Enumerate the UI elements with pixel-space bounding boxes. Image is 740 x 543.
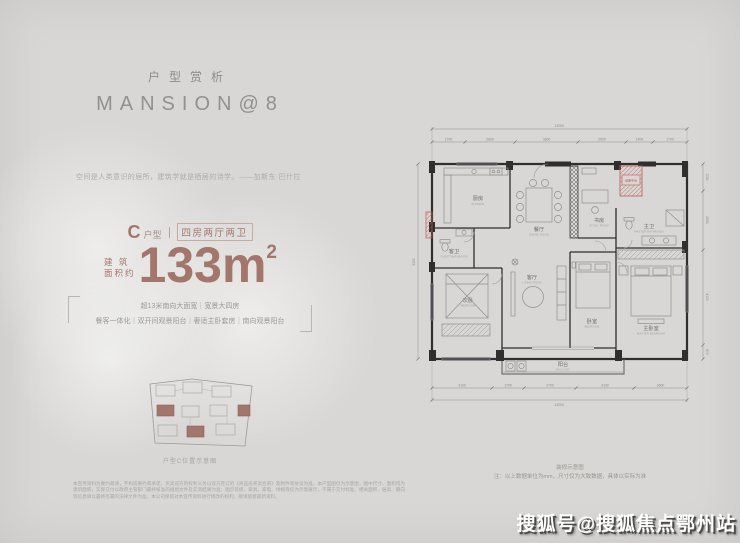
equipment-platform-label: 设备平台 bbox=[625, 178, 637, 183]
room-label: 主卫 bbox=[644, 222, 654, 230]
room-study: 书房 STUDY ROOM bbox=[589, 216, 609, 228]
room-label: 厨房 bbox=[473, 194, 483, 202]
room-label: 客厅 bbox=[527, 273, 537, 281]
key-plan-highlighted-units bbox=[157, 405, 250, 437]
room-sublabel: BEDROOM bbox=[585, 325, 600, 329]
dim-label: 1700 bbox=[666, 138, 674, 142]
room-sublabel: STUDY ROOM bbox=[589, 224, 609, 228]
dim-label: 600 bbox=[705, 349, 709, 355]
dim-label: 1150 bbox=[705, 173, 709, 180]
floor-plan: 13200 1700 2600 3300 2500 1400 1700 3350… bbox=[402, 116, 724, 466]
walls bbox=[429, 161, 689, 374]
dim-label: 3300 bbox=[543, 138, 551, 142]
header: 户型赏析 MANSION@8 bbox=[58, 68, 322, 116]
area-prefix: 建 筑 面积约 bbox=[104, 257, 136, 279]
room-kitchen: 厨房 KITCHEN bbox=[472, 194, 485, 206]
dim-label: 1700 bbox=[445, 138, 453, 142]
room-label: 次卧 bbox=[463, 296, 473, 304]
area-prefix-line2: 面积约 bbox=[104, 268, 136, 279]
dim-label: 2600 bbox=[657, 384, 665, 388]
room-sublabel: BALCONY bbox=[556, 368, 570, 372]
dim-label: 1700 bbox=[504, 384, 512, 388]
divider bbox=[169, 227, 170, 238]
room-guest-bath: 客卫 GUEST BATHROOM bbox=[440, 247, 467, 259]
dim-label: 2500 bbox=[598, 138, 606, 142]
room-sublabel: MASTER BEDROOM bbox=[637, 332, 665, 336]
plan-notes: 装修示意图 注：以上数据单位为mm，尺寸仅为大致数据，具体以实际为准 bbox=[420, 464, 720, 482]
room-label: 餐厅 bbox=[534, 225, 544, 233]
watermark: 搜狐号@搜狐焦点鄂州站 bbox=[516, 509, 736, 536]
key-plan-caption: 户型C位置示意图 bbox=[58, 456, 322, 465]
room-bedroom: 卧室 BEDROOM bbox=[585, 317, 600, 329]
dim-label: 3100 bbox=[601, 384, 609, 388]
room-balcony: 阳台 BALCONY bbox=[556, 360, 570, 372]
room-sublabel: KITCHEN bbox=[472, 202, 485, 206]
room-second-bedroom: 次卧 BEDROOM bbox=[461, 296, 476, 308]
feature-line-1: 超13米南向大面宽｜宽景大四房 bbox=[68, 299, 312, 314]
room-sublabel: GUEST BATHROOM bbox=[440, 255, 467, 259]
key-plan bbox=[142, 377, 258, 451]
dim-label: 4100 bbox=[705, 293, 709, 301]
room-master-bedroom: 主卧室 MASTER BEDROOM bbox=[637, 324, 665, 336]
quote-text: 空间是人类意识的居所，建筑学就是栖居的诗学。——加斯东·巴什拉 bbox=[76, 172, 344, 182]
room-label: 书房 bbox=[594, 216, 604, 224]
room-master-bath: 主卫 MASTER BATHROOM bbox=[634, 222, 663, 234]
plan-note-text: 注：以上数据单位为mm，尺寸仅为大致数据，具体以实际为准 bbox=[420, 473, 720, 482]
area-value: 133m bbox=[139, 243, 267, 288]
room-living: 客厅 LIVING ROOM bbox=[522, 273, 542, 285]
room-sublabel: DINING ROOM bbox=[529, 233, 549, 237]
corner-bracket-right bbox=[300, 305, 312, 332]
room-dining: 餐厅 DINING ROOM bbox=[529, 225, 549, 237]
room-label: 客卫 bbox=[449, 247, 459, 255]
area-superscript: 2 bbox=[266, 242, 277, 264]
corner-bracket-left bbox=[68, 296, 80, 323]
room-sublabel: MASTER BATHROOM bbox=[634, 230, 663, 234]
poster-page: 户型赏析 MANSION@8 空间是人类意识的居所，建筑学就是栖居的诗学。——加… bbox=[0, 0, 740, 543]
legal-disclaimer: 本宣传资料为要约邀请，不构成要约或承诺，买卖双方的权利义务以双方签订的《商品房买… bbox=[73, 481, 405, 500]
dim-label: 2550 bbox=[705, 216, 709, 224]
page-subtitle: 户型赏析 bbox=[58, 68, 322, 85]
dim-label: 2700 bbox=[546, 384, 554, 388]
plan-note-title: 装修示意图 bbox=[420, 464, 720, 473]
room-sublabel: LIVING ROOM bbox=[522, 281, 542, 285]
room-label: 阳台 bbox=[558, 360, 568, 368]
page-title: MANSION@8 bbox=[58, 93, 322, 116]
feature-list: 超13米南向大面宽｜宽景大四房 餐客一体化｜双开间观景阳台｜奢适主卧套房｜南向观… bbox=[68, 296, 312, 332]
dim-label: 13200 bbox=[554, 403, 564, 407]
area-prefix-line1: 建 筑 bbox=[104, 257, 136, 268]
dim-label: 1400 bbox=[636, 138, 644, 142]
dim-label: 3100 bbox=[458, 384, 466, 388]
room-label: 主卧室 bbox=[643, 324, 659, 332]
dim-label: 2600 bbox=[486, 138, 494, 142]
dim-label: 3350 bbox=[412, 258, 416, 266]
dim-label: 13200 bbox=[554, 124, 564, 128]
room-label: 卧室 bbox=[587, 317, 597, 325]
feature-line-2: 餐客一体化｜双开间观景阳台｜奢适主卧套房｜南向观景阳台 bbox=[68, 314, 312, 329]
area-block: 建 筑 面积约 133m 2 bbox=[104, 242, 277, 288]
room-sublabel: BEDROOM bbox=[461, 304, 476, 308]
